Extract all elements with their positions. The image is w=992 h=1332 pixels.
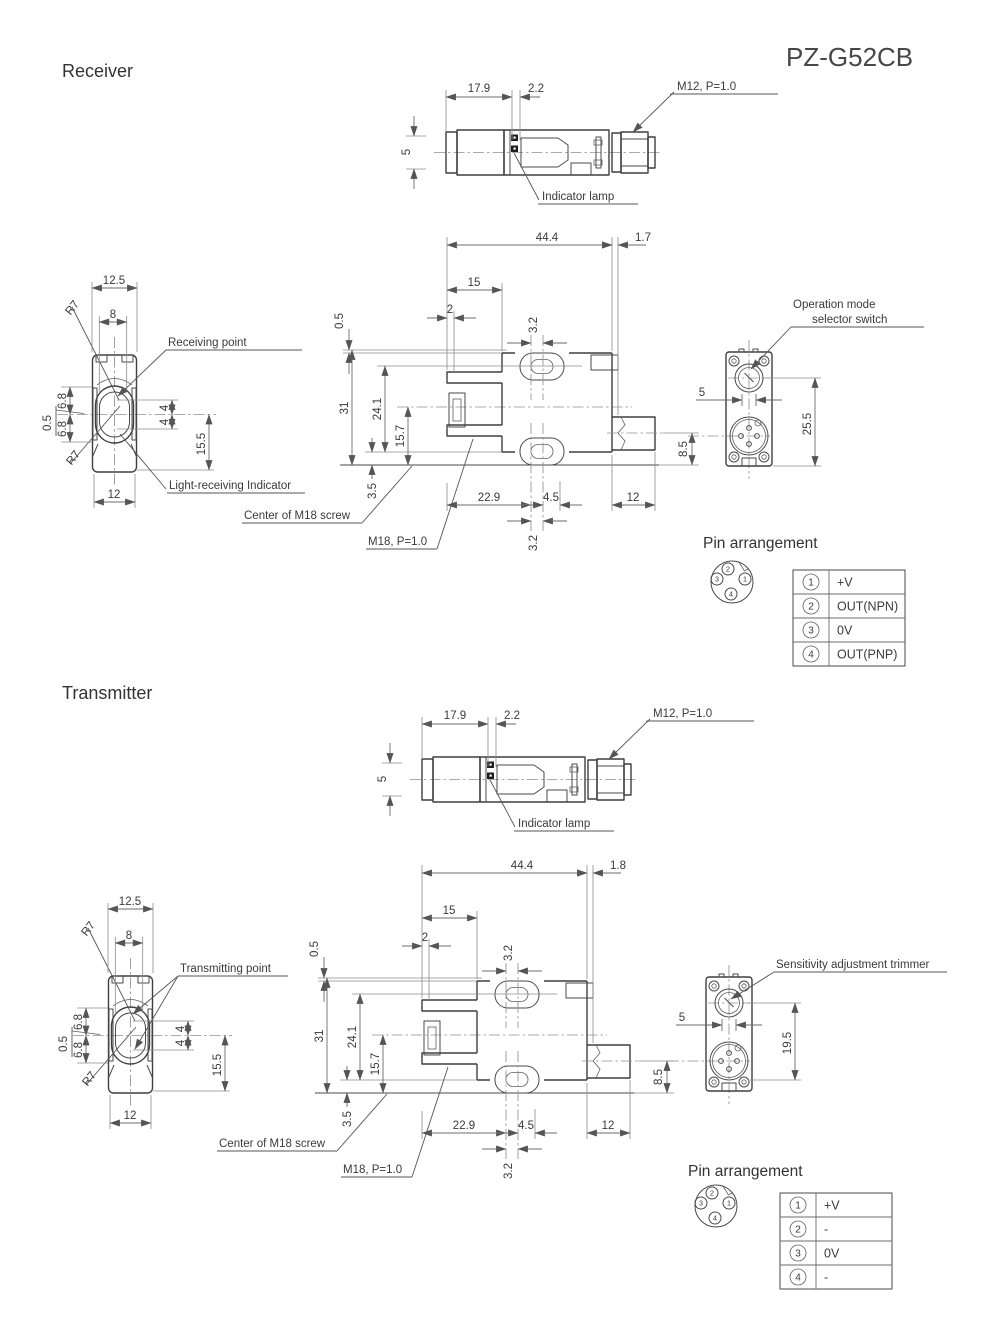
pin-row-number: 3: [808, 626, 814, 637]
receiver-top-view: 17.9 2.2 5 M12, P=1.0 Indicator lamp: [401, 81, 778, 204]
indicator-leader: [120, 434, 166, 489]
dim-offset-05: 0.5: [58, 1036, 70, 1052]
receiver-top-view-geometry: [406, 90, 778, 204]
dim-center-up: 4: [159, 404, 171, 411]
receiver-front-view-geometry: [56, 282, 216, 508]
transmitter-pin-connector-face: 2 1 3 4: [695, 1185, 737, 1227]
pin-row-number: 1: [795, 1201, 801, 1212]
pin-row-label: -: [824, 1271, 828, 1285]
dim-flange: 15: [443, 905, 456, 917]
dim-bottom1: 22.9: [478, 492, 500, 504]
pin-diagram-bottom: 4: [729, 590, 733, 599]
dim-upper-68: 6.8: [57, 393, 69, 409]
pin-row-number: 1: [808, 578, 814, 589]
transmitter-top-view: 17.9 2.2 5 M12, P=1.0 Indicator lamp: [377, 708, 754, 831]
dim-rear-height: 25.5: [802, 413, 814, 435]
transmitting-point-leader-lower: [135, 976, 178, 1049]
operation-mode-label-line1: Operation mode: [793, 299, 875, 311]
dim-bottom-width: 12: [108, 489, 121, 501]
transmitter-title: Transmitter: [62, 683, 152, 703]
m18-screw-label: M18, P=1.0: [343, 1164, 402, 1176]
dim-lower-68: 6.8: [57, 421, 69, 437]
dim-cable-width: 17.9: [444, 710, 466, 722]
dim-cable-height: 5: [377, 776, 389, 782]
dim-lower-height: 15.5: [196, 433, 208, 455]
pin-row-number: 3: [795, 1249, 801, 1260]
dim-center-down: 4: [175, 1039, 187, 1046]
dim-cable-offset: 2.2: [528, 83, 544, 95]
transmitter-pin-arrangement: Pin arrangement 2 1 3 4 1 +V 2 - 3 0V 4 …: [688, 1163, 892, 1289]
pin-row-label: 0V: [824, 1247, 840, 1261]
dim-offset: 0.5: [309, 941, 321, 957]
dim-radius-bottom: R7: [80, 1070, 99, 1089]
transmitting-point-leader-upper: [133, 976, 178, 1014]
dim-cable-offset: 2.2: [504, 710, 520, 722]
m18-screw-label: M18, P=1.0: [368, 536, 427, 548]
pin-row-label: OUT(NPN): [837, 600, 898, 614]
pin-row-number: 4: [808, 650, 814, 661]
dim-slot-width: 8: [110, 309, 116, 321]
dim-switch-offset: 5: [699, 387, 705, 399]
receiver-section: Receiver 17.9 2.2 5 M12, P=1.0 Indicator…: [42, 61, 924, 666]
transmitter-pin-table: 1 +V 2 - 3 0V 4 -: [780, 1193, 892, 1289]
dim-height: 31: [339, 402, 351, 415]
dim-lower-68: 6.8: [73, 1042, 85, 1058]
m12-connector-label: M12, P=1.0: [653, 708, 712, 720]
pin-arrangement-title: Pin arrangement: [703, 535, 818, 552]
pin-diagram-top: 2: [710, 1189, 714, 1198]
pin-row-number: 2: [808, 602, 814, 613]
pin-row-label: OUT(PNP): [837, 648, 897, 662]
dim-bottom2: 4.5: [518, 1120, 534, 1132]
dim-radius-top: R7: [79, 920, 98, 939]
dim-connector-offset: 8.5: [653, 1069, 665, 1085]
receiver-rear-view-geometry: [688, 340, 782, 479]
pin-row-label: +V: [824, 1199, 840, 1213]
dim-base: 3.5: [367, 483, 379, 499]
dim-slot-bottom: 3.2: [503, 1163, 515, 1179]
dim-cable-width: 17.9: [468, 83, 490, 95]
dim-step: 2: [422, 932, 428, 944]
pin-row-number: 2: [795, 1225, 801, 1236]
pin-row-label: +V: [837, 576, 853, 590]
transmitter-rear-view: 5 19.5 Sensitivity adjustment trimmer: [668, 959, 947, 1104]
dim-axis-bottom: 15.7: [395, 425, 407, 447]
pin-row-number: 4: [795, 1273, 801, 1284]
dimension-drawing-page: PZ-G52CB Receiver 17.9 2.2 5 M12, P=1.0 …: [0, 0, 992, 1332]
dim-height: 31: [314, 1030, 326, 1043]
dim-connector-offset: 8.5: [678, 441, 690, 457]
dim-slot-width: 8: [126, 930, 132, 942]
indicator-lamp-label: Indicator lamp: [518, 818, 590, 830]
dim-bottom3: 12: [602, 1120, 615, 1132]
dim-flange: 15: [468, 277, 481, 289]
receiver-front-view: 12.5 8 R7 R7 6.8 6.8 0.5 4 4 15.5 12 Rec…: [42, 275, 305, 508]
dim-slot-bottom: 3.2: [528, 535, 540, 551]
receiver-rear-view: 5 25.5 Operation mode selector switch: [688, 299, 924, 479]
pin-diagram-top: 2: [726, 565, 730, 574]
dim-bottom-width: 12: [124, 1110, 137, 1122]
pin-diagram-left: 3: [699, 1199, 703, 1208]
transmitter-top-view-geometry: [382, 717, 754, 831]
center-of-m18-label: Center of M18 screw: [219, 1138, 326, 1150]
receiver-title: Receiver: [62, 61, 133, 81]
sensitivity-trimmer-label: Sensitivity adjustment trimmer: [776, 959, 930, 971]
receiving-point-label: Receiving point: [168, 337, 247, 349]
dim-tail: 1.7: [635, 232, 651, 244]
receiver-side-view: 44.4 1.7 15 2 0.5 3.2 31 24.1 15.7 3.5 2…: [242, 232, 699, 551]
pin-diagram-right: 1: [743, 575, 747, 584]
dim-slot-top: 3.2: [503, 945, 515, 961]
dim-step: 2: [447, 304, 453, 316]
dim-center-up: 4: [175, 1025, 187, 1032]
transmitter-side-view: 44.4 1.8 15 2 0.5 3.2 31 24.1 15.7 3.5 2…: [217, 860, 674, 1179]
dim-center-down: 4: [159, 418, 171, 425]
drawing-svg: PZ-G52CB Receiver 17.9 2.2 5 M12, P=1.0 …: [0, 0, 992, 1332]
pin-row-label: -: [824, 1223, 828, 1237]
dim-slot-top: 3.2: [528, 317, 540, 333]
dim-outer-width: 12.5: [119, 896, 141, 908]
receiving-point-leader: [118, 350, 166, 396]
operation-mode-label-line2: selector switch: [812, 314, 887, 326]
page-title-model: PZ-G52CB: [786, 42, 913, 72]
dim-tail: 1.8: [610, 860, 626, 872]
pin-diagram-bottom: 4: [713, 1214, 717, 1223]
dim-radius-top: R7: [63, 299, 82, 318]
dim-rear-height: 19.5: [782, 1032, 794, 1054]
dim-axis-bottom: 15.7: [370, 1053, 382, 1075]
m12-connector-label: M12, P=1.0: [677, 81, 736, 93]
dim-cable-height: 5: [401, 149, 413, 155]
indicator-lamp-label: Indicator lamp: [542, 191, 614, 203]
dim-length: 44.4: [511, 860, 534, 872]
dim-hole-span: 24.1: [347, 1026, 359, 1048]
receiver-pin-arrangement: Pin arrangement 2 1 3 4 1 +V 2 OUT(NPN) …: [703, 535, 905, 666]
dim-offset: 0.5: [334, 313, 346, 329]
receiver-pin-connector-face: 2 1 3 4: [711, 561, 753, 603]
dim-length: 44.4: [536, 232, 559, 244]
switch-leader: [751, 327, 791, 369]
dim-trimmer-offset: 5: [679, 1012, 685, 1024]
transmitter-rear-view-geometry: [668, 965, 762, 1104]
transmitter-front-view-geometry: [72, 903, 232, 1129]
pin-diagram-left: 3: [715, 575, 719, 584]
dim-lower-height: 15.5: [212, 1054, 224, 1076]
dim-upper-68: 6.8: [73, 1014, 85, 1030]
dim-base: 3.5: [342, 1111, 354, 1127]
center-of-m18-label: Center of M18 screw: [244, 510, 351, 522]
dim-bottom1: 22.9: [453, 1120, 475, 1132]
dim-offset-05: 0.5: [42, 415, 54, 431]
receiver-pin-table: 1 +V 2 OUT(NPN) 3 0V 4 OUT(PNP): [793, 570, 905, 666]
pin-row-label: 0V: [837, 624, 853, 638]
transmitter-front-view: 12.5 8 R7 R7 6.8 6.8 0.5 4 4 15.5 12 Tra…: [58, 896, 288, 1129]
pin-diagram-right: 1: [727, 1199, 731, 1208]
dim-outer-width: 12.5: [103, 275, 125, 287]
dim-hole-span: 24.1: [372, 398, 384, 420]
transmitter-section: Transmitter 17.9 2.2 5 M12, P=1.0 Indica…: [58, 683, 947, 1289]
light-receiving-indicator-label: Light-receiving Indicator: [169, 480, 291, 492]
transmitting-point-label: Transmitting point: [180, 963, 272, 975]
pin-arrangement-title: Pin arrangement: [688, 1163, 803, 1180]
dim-bottom3: 12: [627, 492, 640, 504]
dim-radius-bottom: R7: [64, 449, 83, 468]
dim-bottom2: 4.5: [543, 492, 559, 504]
